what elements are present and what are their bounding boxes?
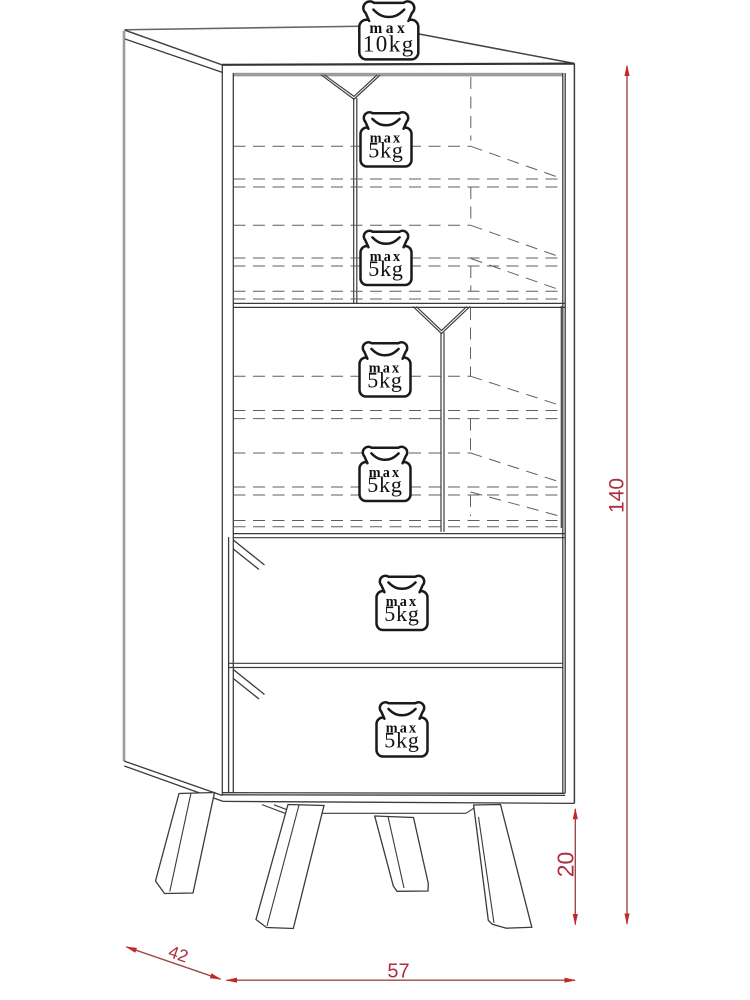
svg-text:5kg: 5kg: [384, 728, 419, 753]
svg-text:5kg: 5kg: [367, 472, 402, 497]
svg-text:5kg: 5kg: [384, 601, 419, 626]
svg-text:20: 20: [552, 852, 578, 878]
svg-text:5kg: 5kg: [367, 368, 402, 393]
svg-text:57: 57: [387, 961, 409, 983]
svg-text:5kg: 5kg: [368, 138, 403, 163]
svg-text:5kg: 5kg: [368, 256, 403, 281]
svg-text:42: 42: [166, 941, 191, 966]
svg-text:10kg: 10kg: [363, 31, 415, 56]
svg-text:140: 140: [606, 478, 629, 513]
